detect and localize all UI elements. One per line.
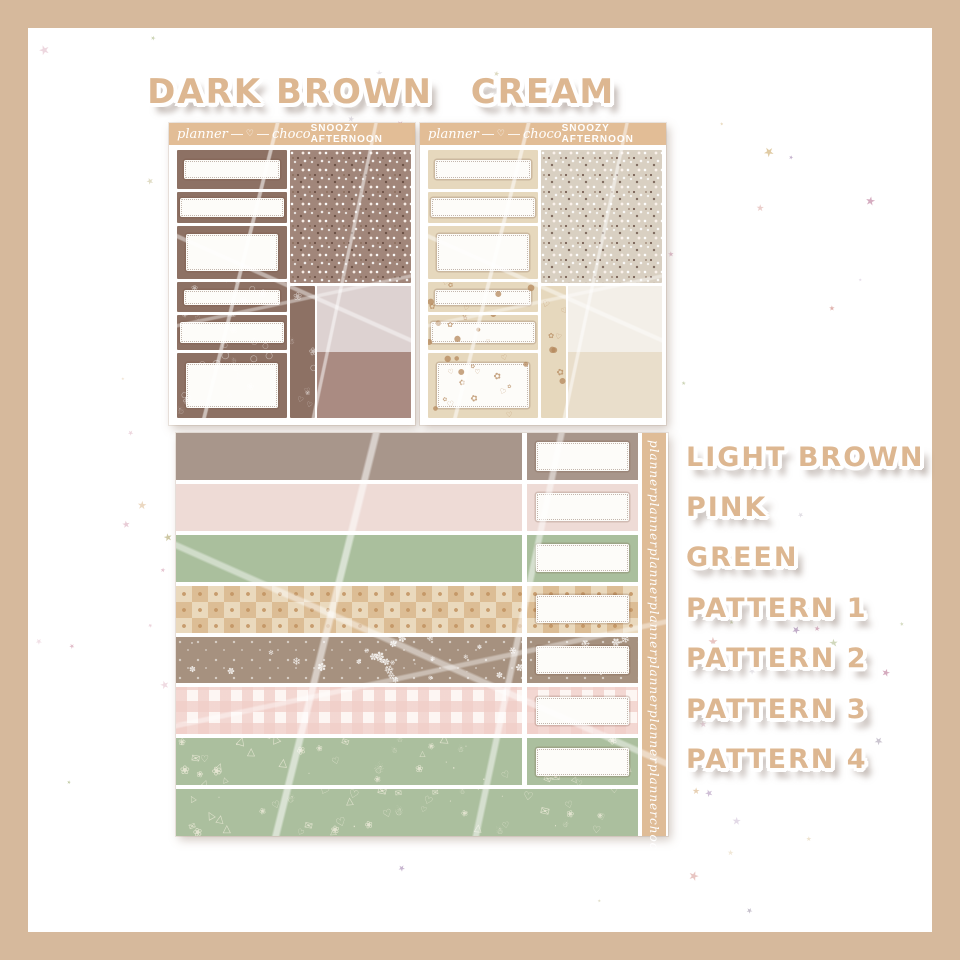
doodle-glyph: ❀ [373, 774, 382, 784]
star-icon: ★ [146, 623, 153, 630]
flourish-line [231, 134, 243, 135]
doodle-strip: ●✿♡●♡✿♡● [541, 286, 566, 418]
sticker-box [428, 150, 538, 189]
doodle-glyph: · [451, 762, 457, 774]
doodle-glyph: ♡ [305, 401, 313, 410]
washi-strip-row [176, 687, 638, 734]
sticker-box [428, 226, 538, 279]
side-label-light-brown: LIGHT BROWN [686, 438, 925, 476]
torn-label-sticker [536, 646, 629, 674]
doodle-glyph: · [371, 789, 378, 793]
doodle-glyph: ♡ [296, 827, 306, 836]
doodle-glyph: △ [279, 757, 289, 769]
sheet-body: ●♡✿♡●✿♡● ●●✿●♡●✿✿● ✿♡✿♡●✿●●♡✿✿✿♡●♡●♡ ●✿♡… [420, 145, 666, 425]
doodle-glyph: ● [453, 355, 460, 362]
doodle-glyph: ✉ [339, 738, 350, 748]
star-icon: ★ [666, 250, 675, 258]
star-icon: ★ [756, 203, 765, 213]
doodle-glyph: ☃ [496, 828, 505, 836]
star-icon: ★ [787, 156, 794, 163]
torn-label-sticker [437, 363, 529, 409]
doodle-glyph: ○ [264, 353, 274, 362]
doodle-glyph: ✽ [476, 644, 482, 650]
star-icon: ★ [160, 532, 174, 545]
solid-swatch-dark [317, 352, 411, 418]
doodle-glyph: · [466, 669, 469, 676]
doodle-glyph: ☃ [177, 407, 187, 418]
doodle-glyph: ☃ [370, 762, 385, 777]
star-icon: ★ [702, 787, 715, 800]
star-icon: ★ [65, 780, 70, 785]
washi-strip-row [176, 586, 638, 633]
doodle-glyph: ✉ [190, 753, 201, 765]
doodle-glyph: ❄ [292, 656, 301, 667]
washi-strip-pattern-3 [176, 687, 522, 734]
doodle-glyph: ❀ [427, 741, 437, 751]
doodle-glyph: ✽ [515, 663, 522, 675]
doodle-glyph: △ [188, 793, 197, 803]
vertical-brand-text: planner [648, 494, 660, 548]
doodle-glyph: ❀ [596, 811, 604, 820]
doodle-glyph: △ [419, 750, 425, 758]
doodle-glyph: ✉ [303, 821, 313, 833]
doodle-glyph: ❄ [382, 662, 396, 677]
doodle-glyph: ○ [220, 353, 230, 361]
doodle-strip: ❀♡☃❀○♡♡❀ [290, 286, 315, 418]
washi-label-box [527, 586, 638, 633]
doodle-sticker-box: ☃❀○○❀❀♡♡○ [177, 315, 287, 350]
vertical-brand-text: planner [648, 548, 660, 602]
star-icon: ★ [121, 377, 125, 381]
washi-strip-pattern-4: ☃♡△✉·△·△··△❀☃·❀·❀❀☃△❀❀△✉❀♡❀✉·♡☃△❀△△ [176, 738, 522, 785]
doodle-glyph: ♡ [271, 800, 282, 812]
solid-swatch-light [568, 286, 662, 352]
side-label-pattern-2: PATTERN 2 [686, 640, 868, 678]
star-icon: ★ [897, 622, 904, 629]
doodle-glyph: · [437, 645, 442, 656]
brand-planner: planner [177, 127, 228, 142]
doodle-glyph: ✽ [355, 659, 361, 666]
star-icon: ★ [806, 837, 812, 843]
doodle-glyph: ☃ [285, 794, 296, 806]
washi-strip-green [176, 535, 522, 582]
flourish-line [508, 134, 520, 135]
washi-strip-row: ✽✽✽❄✽·❄❄·❄❄❄✽·❄✽✽✽❄❄✽✽❄✽✽❄··✽❄·✽❄✽··✽·✽·… [176, 637, 638, 684]
doodle-glyph: ♡ [297, 395, 305, 404]
doodle-glyph: ✽ [381, 657, 391, 668]
doodle-glyph: ♡ [331, 756, 342, 767]
torn-label-sticker [184, 290, 281, 305]
doodle-glyph: ♡ [500, 353, 508, 362]
doodle-glyph: ♡ [564, 800, 575, 811]
sticker-sheet-cream: planner♡choco SNOOZY AFTERNOON ●♡✿♡●✿♡● … [420, 123, 666, 425]
doodle-glyph: ♡ [574, 778, 583, 785]
doodle-glyph: ❀ [178, 738, 187, 747]
doodle-glyph: △ [223, 824, 231, 835]
torn-label-sticker [536, 442, 629, 470]
doodle-glyph: △ [270, 738, 283, 745]
doodle-glyph: ♡ [317, 789, 331, 798]
star-icon: ★ [681, 382, 687, 388]
sticker-sheet-dark-brown: planner♡choco SNOOZY AFTERNOON ☃❀♡○☃❀♡❀ … [169, 123, 415, 425]
star-icon: ★ [67, 642, 76, 651]
heart-icon: ♡ [497, 130, 505, 139]
glitter-swatch [290, 150, 411, 283]
doodle-glyph: ♡ [506, 411, 513, 418]
star-icon: ★ [871, 735, 885, 749]
washi-label-box [527, 433, 638, 480]
star-icon: ★ [159, 568, 165, 575]
doodle-glyph: ✿ [556, 368, 566, 379]
doodle-glyph: · [412, 660, 419, 670]
doodle-glyph: ☃ [561, 820, 570, 830]
doodle-glyph: ✉ [539, 805, 551, 818]
doodle-glyph: · [217, 793, 222, 801]
sticker-box [177, 192, 287, 224]
star-icon: ★ [346, 115, 355, 123]
star-icon: ★ [596, 899, 601, 904]
collection-name: SNOOZY AFTERNOON [311, 123, 407, 145]
doodle-sticker-box: ●●✿●♡●✿✿● [428, 315, 538, 350]
doodle-glyph: · [351, 822, 359, 833]
doodle-glyph: ○ [310, 363, 315, 372]
doodle-glyph: ♡ [555, 332, 563, 341]
doodle-glyph: ✉ [376, 789, 388, 798]
torn-label-sticker [536, 544, 629, 572]
doodle-glyph: ❄ [386, 671, 397, 683]
doodle-glyph: · [500, 793, 504, 801]
doodle-glyph: ♡ [419, 805, 428, 814]
doodle-glyph: ❄ [425, 637, 434, 645]
brand-logo: planner♡choco [428, 127, 562, 142]
doodle-glyph: ♡ [541, 299, 551, 309]
doodle-glyph: ✿ [447, 282, 454, 289]
doodle-glyph: ✽ [374, 650, 386, 663]
doodle-glyph: ♡ [609, 789, 620, 796]
doodle-sticker-box: ✿♡✿♡●✿●●♡✿✿✿♡●♡●♡ [428, 353, 538, 418]
vertical-brand-text: choco [648, 818, 660, 859]
torn-label-sticker [536, 493, 629, 521]
doodle-glyph: ♡ [591, 826, 601, 836]
washi-label-box: ✽❄✽··✽·✽·❄ [527, 637, 638, 684]
brand-logo: planner♡choco [177, 127, 311, 142]
doodle-glyph: ❄ [363, 648, 370, 656]
sheet-body: ☃❀♡○☃❀♡❀ ☃❀○○❀❀♡♡○ ☃○○☃☃♡☃○❀○○○○❀○☃☃ ❀♡☃… [169, 145, 415, 425]
flourish-line [257, 134, 269, 135]
washi-label-box [527, 484, 638, 531]
doodle-glyph: ♡ [597, 812, 606, 822]
doodle-glyph: ❀ [257, 806, 267, 816]
torn-label-sticker [536, 595, 629, 623]
doodle-glyph: ♡ [560, 305, 566, 315]
washi-label-box [527, 535, 638, 582]
doodle-glyph: ☃ [390, 746, 398, 754]
washi-strips: ✽✽✽❄✽·❄❄·❄❄❄✽·❄✽✽✽❄❄✽✽❄✽✽❄··✽❄·✽❄✽··✽·✽·… [176, 433, 638, 836]
torn-label-sticker [186, 234, 278, 271]
doodle-glyph: ❄ [389, 659, 397, 667]
washi-label-box [527, 687, 638, 734]
doodle-glyph: ❄ [463, 654, 469, 661]
doodle-glyph: ● [558, 375, 566, 385]
doodle-glyph: · [476, 789, 479, 793]
doodle-glyph: ✉ [395, 790, 403, 799]
doodle-glyph: ✽ [316, 661, 327, 674]
washi-strip-pink [176, 484, 522, 531]
star-icon: ★ [137, 501, 148, 513]
doodle-glyph: · [481, 775, 486, 785]
doodle-glyph: ✿ [462, 315, 468, 320]
doodle-glyph: ✽ [227, 667, 238, 678]
star-icon: ★ [761, 144, 778, 161]
doodle-glyph: ❄ [428, 676, 435, 683]
side-label-pattern-3: PATTERN 3 [686, 690, 868, 728]
torn-label-sticker [186, 363, 278, 409]
star-icon: ★ [686, 868, 701, 883]
washi-label-box: ✉✉♡♡✉♡△❀♡△❀ [527, 738, 638, 785]
doodle-glyph: ❀ [305, 391, 311, 398]
vertical-brand-text: planner [648, 656, 660, 710]
star-icon: ★ [396, 863, 407, 874]
doodle-glyph: ☃ [231, 282, 243, 288]
doodle-glyph: △ [329, 828, 336, 836]
torn-label-sticker [536, 697, 629, 725]
doodle-glyph: ❄ [267, 649, 274, 657]
doodle-glyph: △ [236, 738, 248, 747]
washi-strip-row [176, 484, 638, 531]
doodle-glyph: ♡ [421, 794, 434, 807]
doodle-glyph: ✿ [547, 332, 553, 339]
doodle-sticker-box: ●♡✿♡●✿♡● [428, 282, 538, 312]
doodle-glyph: ✉ [188, 822, 198, 832]
heart-icon: ♡ [246, 130, 254, 139]
star-icon: ★ [144, 175, 156, 187]
star-icon: ★ [726, 848, 735, 856]
doodle-glyph: ♡ [462, 304, 469, 312]
washi-strip-row: ☃♡△✉·△·△··△❀☃·❀·❀❀☃△❀❀△✉❀♡❀✉·♡☃△❀△△✉✉♡♡✉… [176, 738, 638, 785]
torn-label-sticker [431, 322, 536, 343]
star-icon: ★ [745, 906, 755, 916]
doodle-glyph: ✽ [369, 652, 380, 664]
doodle-glyph: ✽ [188, 665, 195, 674]
star-icon: ★ [33, 636, 43, 647]
doodle-glyph: ● [428, 296, 435, 305]
doodle-sticker-box: ☃○○☃☃♡☃○❀○○○○❀○☃☃ [177, 353, 287, 418]
doodle-glyph: ● [550, 345, 559, 354]
doodle-glyph: ✽ [496, 670, 504, 679]
star-icon: ★ [718, 121, 724, 127]
doodle-glyph: ♡ [441, 282, 450, 287]
doodle-glyph: ❀ [181, 315, 190, 318]
washi-strip-pattern-2: ✽✽✽❄✽·❄❄·❄❄❄✽·❄✽✽✽❄❄✽✽❄✽✽❄··✽❄· [176, 637, 522, 684]
star-icon: ★ [36, 42, 53, 59]
washi-strip-row [176, 535, 638, 582]
doodle-glyph: ❀ [192, 826, 204, 836]
star-icon: ★ [827, 305, 836, 313]
solid-swatch-dark [568, 352, 662, 418]
doodle-glyph: ♡ [200, 755, 209, 765]
doodle-glyph: ♡ [501, 821, 510, 831]
doodle-glyph: ♡ [347, 789, 361, 802]
brand-planner: planner [428, 127, 479, 142]
doodle-glyph: ☃ [458, 789, 465, 795]
torn-label-sticker [435, 290, 532, 305]
doodle-glyph: · [307, 770, 312, 778]
washi-strip-pattern-1 [176, 586, 522, 633]
torn-label-sticker [184, 160, 281, 179]
torn-label-sticker [437, 234, 529, 271]
star-icon: ★ [865, 196, 878, 209]
star-icon: ★ [125, 429, 134, 438]
doodle-glyph: △ [214, 761, 226, 774]
doodle-glyph: · [431, 637, 436, 643]
sheet-header: planner♡choco SNOOZY AFTERNOON [420, 123, 666, 145]
doodle-glyph: ● [548, 344, 558, 354]
star-icon: ★ [857, 277, 862, 282]
washi-strip-light-brown [176, 433, 522, 480]
doodle-glyph: ♡ [382, 808, 394, 821]
doodle-glyph: ❀ [364, 820, 375, 832]
brand-choco: choco [272, 127, 311, 142]
doodle-glyph: · [189, 638, 194, 650]
torn-label-sticker [431, 198, 536, 218]
side-label-pattern-4: PATTERN 4 [686, 740, 868, 778]
doodle-glyph: ❄ [391, 677, 399, 684]
sheet-header: planner♡choco SNOOZY AFTERNOON [169, 123, 415, 145]
doodle-glyph: ❀ [180, 765, 190, 777]
colorway-label-dark-brown: DARK BROWN [140, 70, 440, 114]
star-icon: ★ [880, 668, 892, 680]
star-icon: ★ [729, 815, 742, 827]
doodle-glyph: ❀ [230, 315, 237, 319]
doodle-glyph: ❀ [315, 743, 324, 753]
star-icon: ★ [119, 518, 131, 530]
doodle-glyph: ❀ [331, 825, 341, 836]
doodle-glyph: ❀ [414, 765, 423, 776]
side-label-green: GREEN [686, 539, 798, 577]
torn-label-sticker [536, 748, 629, 776]
side-label-pink: PINK [686, 488, 767, 526]
doodle-glyph: △ [221, 775, 229, 784]
vertical-brand-text: planner [648, 602, 660, 656]
colorway-label-cream: CREAM [420, 70, 666, 114]
sticker-box [177, 226, 287, 279]
doodle-glyph: ❀ [295, 745, 308, 759]
doodle-glyph: ☃ [222, 282, 229, 285]
doodle-glyph: △ [216, 813, 226, 825]
doodle-glyph: ♡ [194, 315, 202, 321]
flourish-line [482, 134, 494, 135]
doodle-glyph: ☃ [290, 337, 296, 346]
doodle-glyph: ✉ [432, 789, 439, 797]
doodle-glyph: △ [440, 738, 450, 744]
washi-strip-row: ·✉△♡♡✉☃♡♡△✉·♡·♡♡✉❀❀❀♡✉♡♡♡☃△☃·♡☃❀△❀☃·△△△❀… [176, 789, 638, 836]
solid-swatch-light [317, 286, 411, 352]
doodle-glyph: ✽ [397, 637, 408, 646]
washi-strip-row [176, 433, 638, 480]
vertical-brand-text: planner [648, 440, 660, 494]
doodle-glyph: · [363, 647, 368, 655]
doodle-glyph: · [234, 740, 240, 751]
star-icon: ★ [692, 787, 700, 796]
doodle-glyph: △ [346, 796, 354, 806]
doodle-glyph: · [449, 797, 453, 806]
doodle-glyph: ❀ [293, 292, 302, 303]
collection-name: SNOOZY AFTERNOON [562, 123, 658, 145]
doodle-glyph: △ [201, 778, 210, 785]
doodle-glyph: ☃ [457, 745, 466, 754]
doodle-glyph: △ [474, 824, 483, 835]
torn-label-sticker [435, 160, 532, 179]
washi-strip-sheet: ✽✽✽❄✽·❄❄·❄❄❄✽·❄✽✽✽❄❄✽✽❄✽✽❄··✽❄·✽❄✽··✽·✽·… [176, 433, 668, 836]
sticker-box [428, 192, 538, 224]
torn-label-sticker [180, 322, 285, 343]
doodle-glyph: ● [490, 315, 497, 318]
doodle-glyph: ❀ [308, 347, 315, 359]
doodle-glyph: · [463, 808, 469, 818]
doodle-glyph: ❀ [565, 809, 575, 820]
torn-label-sticker [180, 198, 285, 218]
sticker-box [177, 150, 287, 189]
doodle-glyph: · [554, 822, 557, 831]
doodle-glyph: ❄ [430, 656, 435, 662]
doodle-glyph: ♡ [500, 770, 512, 783]
side-label-pattern-1: PATTERN 1 [686, 589, 868, 627]
doodle-glyph: ✿ [429, 303, 436, 311]
doodle-glyph: ❄ [507, 645, 519, 657]
doodle-glyph: ☃ [396, 738, 404, 744]
doodle-glyph: · [464, 743, 469, 751]
vertical-brand-strip: plannerplannerplannerplannerplannerplann… [642, 433, 666, 836]
doodle-sticker-box: ☃❀♡○☃❀♡❀ [177, 282, 287, 312]
washi-strip-doodle-extra: ·✉△♡♡✉☃♡♡△✉·♡·♡♡✉❀❀❀♡✉♡♡♡☃△☃·♡☃❀△❀☃·△△△❀… [176, 789, 638, 836]
glitter-swatch [541, 150, 662, 283]
doodle-glyph: ❀ [210, 765, 223, 780]
doodle-glyph: ♡ [251, 282, 261, 285]
star-icon: ★ [149, 36, 156, 44]
doodle-glyph: ♡ [522, 790, 534, 803]
doodle-glyph: ✽ [388, 640, 397, 650]
doodle-glyph: ♡ [334, 816, 348, 831]
brand-choco: choco [523, 127, 562, 142]
doodle-glyph: · [179, 740, 184, 751]
doodle-glyph: ♡ [304, 387, 311, 395]
doodle-glyph: ♡ [532, 282, 538, 285]
doodle-glyph: ❀ [460, 808, 469, 818]
vertical-brand-text: planner [648, 764, 660, 818]
doodle-glyph: · [444, 757, 448, 766]
product-image: ★★★★★★★★★★★★★★★★★★★★★★★★★★★★★★★★★★★★★★★★… [0, 0, 960, 960]
vertical-brand-text: planner [648, 710, 660, 764]
doodle-glyph: ❀ [606, 738, 619, 747]
doodle-glyph: ✉ [264, 738, 272, 741]
star-icon: ★ [796, 511, 805, 520]
doodle-glyph: ❀ [195, 771, 204, 781]
doodle-glyph: ● [443, 353, 452, 363]
doodle-glyph: △ [247, 747, 255, 758]
doodle-glyph: ☃ [392, 806, 404, 818]
star-icon: ★ [157, 678, 172, 692]
doodle-glyph: ✽ [378, 657, 384, 664]
doodle-glyph: △ [205, 809, 217, 822]
